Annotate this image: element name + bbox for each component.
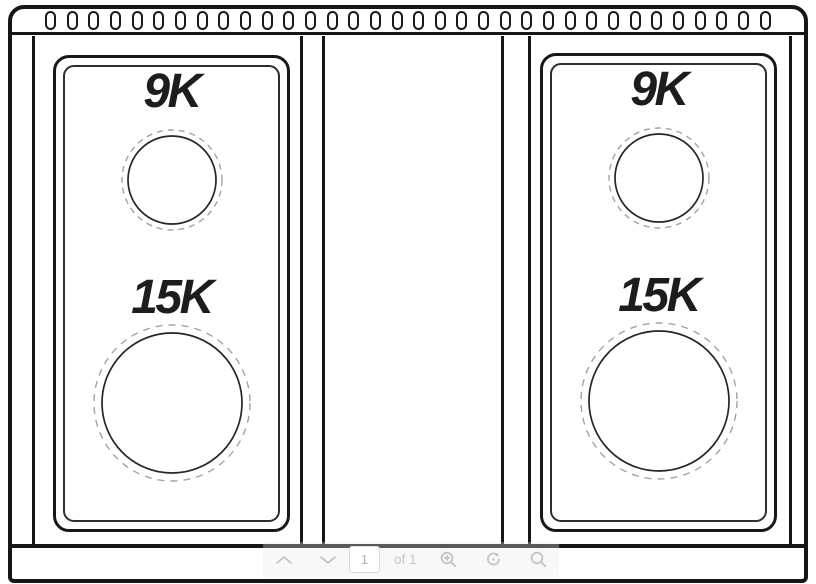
vent-slot [370, 11, 381, 30]
large-burner-circle [579, 321, 739, 481]
divider-left-rail [32, 36, 35, 544]
vent-slot [716, 11, 727, 30]
divider-center-right-a [501, 36, 504, 544]
vent-slot [88, 11, 99, 30]
page-number-input[interactable] [349, 546, 380, 573]
zoom-in-button[interactable] [433, 542, 463, 577]
rotate-button[interactable] [478, 542, 508, 577]
burner-panel-right: 9K 15K [540, 53, 777, 532]
vent-slot [175, 11, 186, 30]
burner-rating-label: 15K [56, 278, 287, 318]
divider-center-left-a [300, 36, 303, 544]
burner-panel-left: 9K 15K [53, 55, 290, 532]
vent-slot [521, 11, 532, 30]
vent-slot [305, 11, 316, 30]
divider-center-right-b [528, 36, 531, 544]
next-page-button[interactable] [313, 542, 343, 577]
vent-slot [673, 11, 684, 30]
vent-slot [608, 11, 619, 30]
divider-center-left-b [322, 36, 325, 544]
small-burner-circle [607, 126, 711, 230]
vent-slot [456, 11, 467, 30]
small-burner-circle [120, 128, 224, 232]
vent-slot [760, 11, 771, 30]
vent-slot [630, 11, 641, 30]
previous-page-button[interactable] [269, 542, 299, 577]
search-icon [530, 551, 547, 568]
vent-slot [651, 11, 662, 30]
divider-right-rail [789, 36, 792, 544]
burner-rating-label: 9K [543, 70, 774, 110]
zoom-in-icon [440, 551, 457, 568]
vent-slot [197, 11, 208, 30]
document-viewer-page: 9K 15K 9K 15K [0, 0, 816, 584]
burner-rating-label: 9K [56, 72, 287, 112]
vent-slot [695, 11, 706, 30]
vent-slot [283, 11, 294, 30]
rangetop-outline: 9K 15K 9K 15K [8, 5, 808, 583]
rotate-icon [485, 551, 502, 568]
vent-slot [478, 11, 489, 30]
vent-slot [45, 11, 56, 30]
vent-slot [153, 11, 164, 30]
vent-slot [565, 11, 576, 30]
vent-slot [327, 11, 338, 30]
viewer-toolbar: of 1 [263, 542, 559, 577]
vent-slot [586, 11, 597, 30]
vent-slot [67, 11, 78, 30]
vent-slot [110, 11, 121, 30]
vent-slot [348, 11, 359, 30]
vent-slot [738, 11, 749, 30]
vent-slot [132, 11, 143, 30]
vent-slot [413, 11, 424, 30]
chevron-down-icon [319, 555, 337, 565]
burner-rating-label: 15K [543, 276, 774, 316]
vent-slot [240, 11, 251, 30]
vent-slot [500, 11, 511, 30]
vent-slot [218, 11, 229, 30]
page-count-label: of 1 [394, 542, 417, 577]
large-burner-circle [92, 323, 252, 483]
vent-slot [435, 11, 446, 30]
vent-slot [392, 11, 403, 30]
vent-slot [262, 11, 273, 30]
vent-slot [543, 11, 554, 30]
vent-bar [12, 9, 804, 35]
chevron-up-icon [275, 555, 293, 565]
search-button[interactable] [523, 542, 553, 577]
